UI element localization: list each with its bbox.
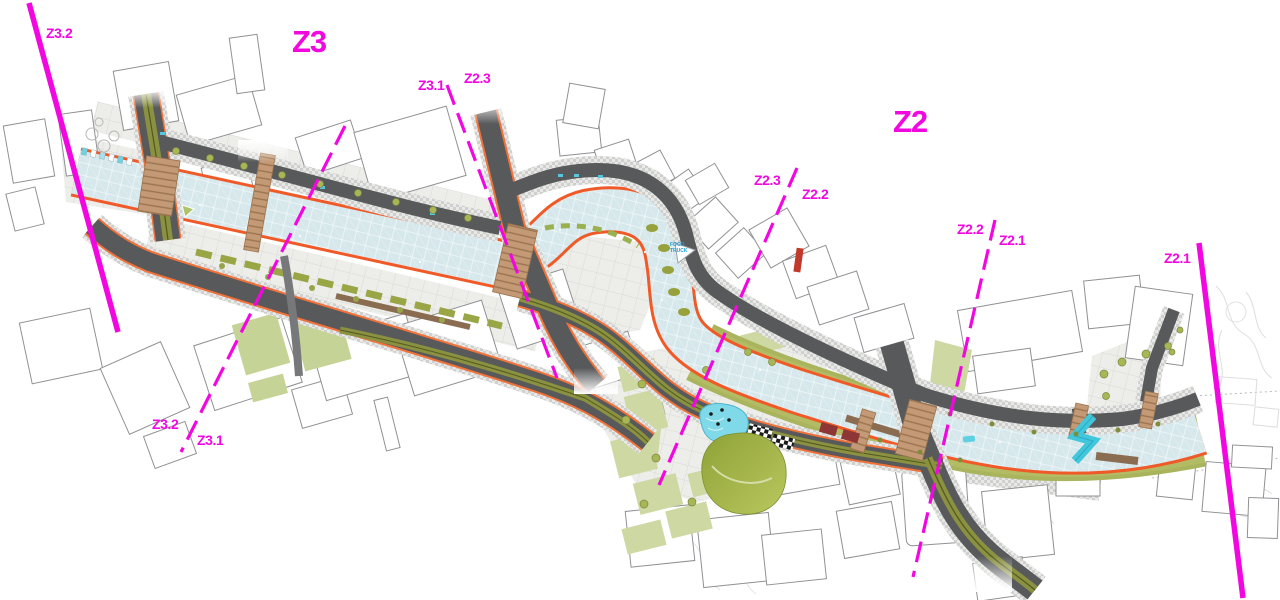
lawn-hill [702,433,786,514]
zone-label-z3-2-top: Z3.2 [46,25,73,41]
zone-label-z3-2-bottom: Z3.2 [152,416,179,432]
boat [963,435,975,442]
zone-line-z2-1-solid [1199,243,1243,598]
zone-label-z2-1-far: Z2.1 [1164,250,1191,266]
boardwalk [1096,456,1138,461]
zone-label-z2: Z2 [893,104,927,139]
zone-label-z2-3-mid: Z2.3 [754,172,781,188]
zone-label-z3: Z3 [292,24,327,59]
zone-label-z2-2-right: Z2.2 [957,221,984,237]
zone-label-z3-1-top: Z3.1 [418,77,445,93]
food-truck-line2: TRUCK [670,248,688,254]
zone-label-z2-2-mid: Z2.2 [802,186,829,202]
masterplan-canvas: FOOD TRUCK Z3.2 Z3 Z3.1 Z2.3 Z2 Z2.3 Z2.… [0,0,1280,600]
zone-label-z2-3-top: Z2.3 [464,70,491,86]
zone-label-z2-1-right: Z2.1 [999,232,1026,248]
masterplan-drawing: FOOD TRUCK Z3.2 Z3 Z3.1 Z2.3 Z2 Z2.3 Z2.… [0,0,1280,600]
zone-label-z3-1-bottom: Z3.1 [197,432,224,448]
